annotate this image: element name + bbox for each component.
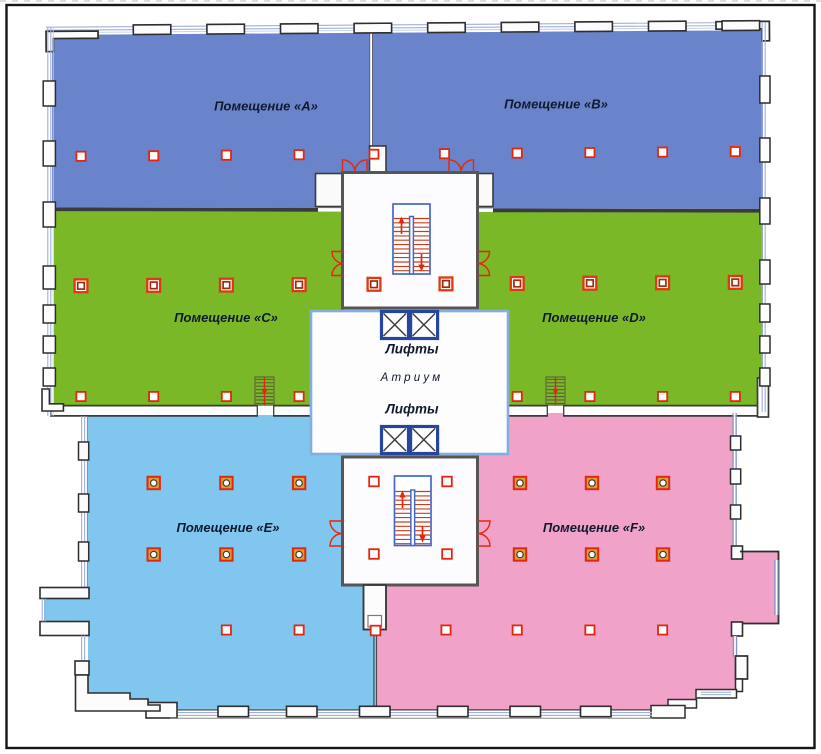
svg-text:Лифты: Лифты: [385, 402, 439, 417]
svg-text:Помещение «С»: Помещение «С»: [174, 310, 278, 325]
svg-text:Помещение «А»: Помещение «А»: [214, 99, 318, 114]
svg-text:Помещение «Е»: Помещение «Е»: [177, 520, 280, 535]
svg-text:Помещение «D»: Помещение «D»: [542, 310, 646, 325]
svg-text:Помещение «F»: Помещение «F»: [543, 520, 645, 535]
svg-text:Атриум: Атриум: [380, 372, 444, 384]
svg-text:Помещение «В»: Помещение «В»: [504, 97, 608, 112]
svg-text:Лифты: Лифты: [385, 342, 439, 357]
